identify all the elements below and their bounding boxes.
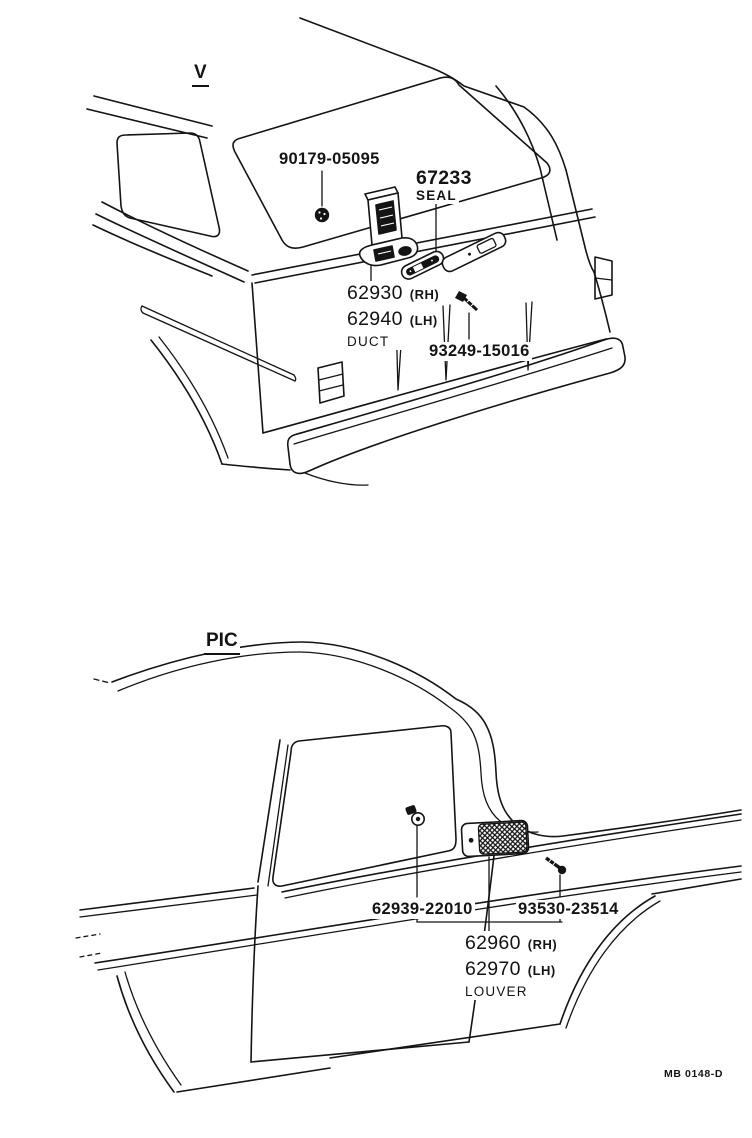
clip-icon — [405, 805, 424, 826]
screw-93530-part-number: 93530-23514 — [516, 900, 621, 919]
duct-label-block: 62930 (RH) 62940 (LH) DUCT — [345, 281, 441, 350]
seal-caption: SEAL — [414, 188, 459, 204]
duct-caption: DUCT — [347, 334, 439, 349]
screw-93249-part-number: 93249-15016 — [427, 342, 532, 361]
louver-rh-number: 62960 — [465, 932, 521, 955]
duct-part-icon — [360, 187, 418, 266]
clip-part-number: 62939-22010 — [370, 900, 475, 919]
view-label-v: V — [192, 63, 209, 87]
louver-rh-side: (RH) — [528, 937, 557, 952]
grommet-icon — [315, 208, 329, 222]
rear-view-car-outline — [87, 18, 625, 485]
louver-rh-row: 62960 (RH) — [465, 932, 557, 955]
louver-label-block: 62960 (RH) 62970 (LH) LOUVER — [463, 931, 559, 1000]
side-view-car-outline — [76, 642, 741, 1092]
view-label-pic: PIC — [204, 631, 240, 655]
screw-93249-icon — [455, 291, 477, 310]
diagram-artwork — [0, 0, 752, 1138]
duct-rh-number: 62930 — [347, 282, 403, 305]
duct-lh-row: 62940 (LH) — [347, 308, 439, 331]
duct-lh-number: 62940 — [347, 308, 403, 331]
figure-code: MB 0148-D — [662, 1068, 725, 1081]
duct-lh-side: (LH) — [410, 313, 438, 328]
louver-caption: LOUVER — [465, 984, 557, 999]
grommet-part-number: 90179-05095 — [277, 150, 382, 169]
louver-lh-side: (LH) — [528, 963, 556, 978]
louver-part-icon — [461, 820, 529, 856]
duct-rh-row: 62930 (RH) — [347, 282, 439, 305]
duct-rh-side: (RH) — [410, 287, 439, 302]
seal-part-number: 67233 — [414, 168, 474, 190]
screw-93530-icon — [546, 858, 566, 874]
parts-diagram-page: V 90179-05095 67233 SEAL 62930 (RH) 6294… — [0, 0, 752, 1138]
louver-lh-number: 62970 — [465, 958, 521, 981]
louver-lh-row: 62970 (LH) — [465, 958, 557, 981]
